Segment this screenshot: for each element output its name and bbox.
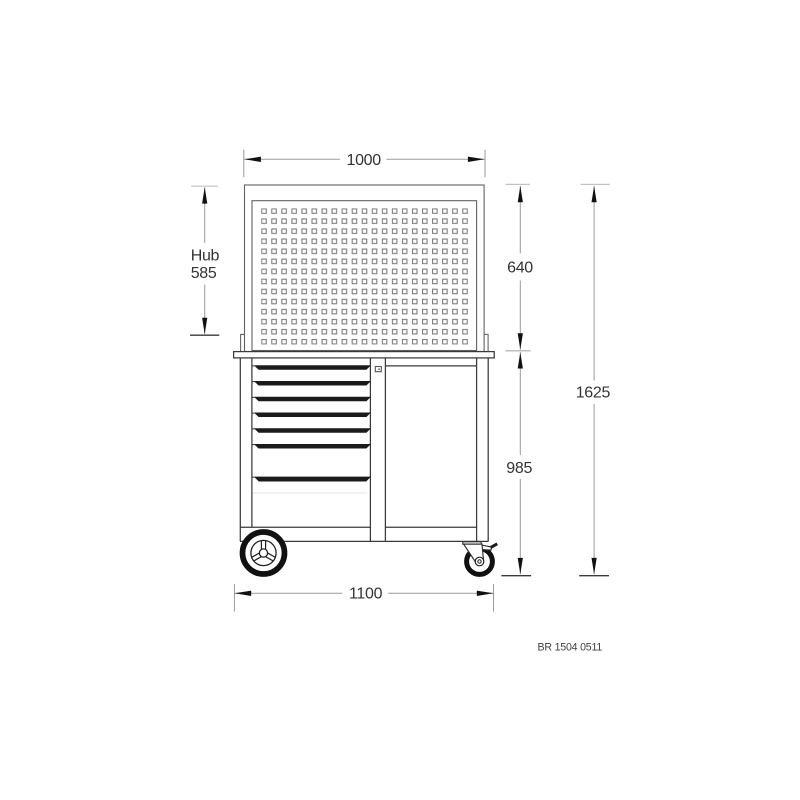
svg-text:1625: 1625 [576,385,611,402]
svg-text:985: 985 [506,460,532,477]
svg-text:Hub: Hub [191,248,220,265]
svg-text:BR 1504 0511: BR 1504 0511 [538,642,603,654]
svg-text:640: 640 [507,260,533,277]
svg-text:1000: 1000 [346,152,381,169]
svg-text:585: 585 [191,265,217,282]
svg-text:1100: 1100 [349,585,383,602]
